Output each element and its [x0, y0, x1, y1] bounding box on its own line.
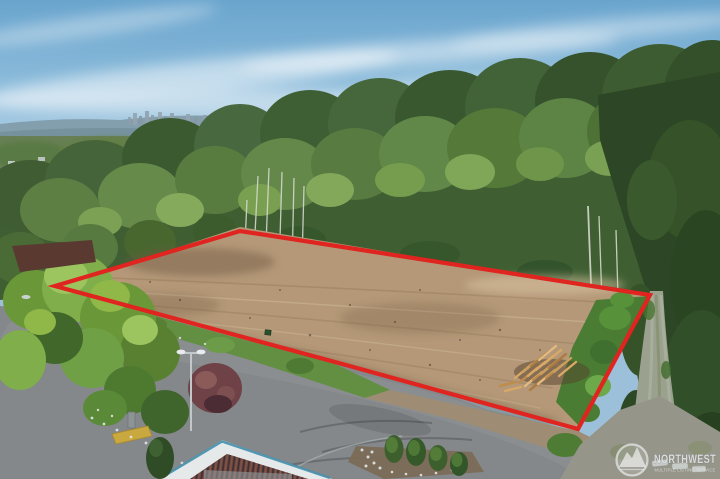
- nwmls-logo-icon: [617, 445, 648, 476]
- watermark-tagline-text: MULTIPLE LISTING SERVICE: [655, 468, 716, 473]
- parking-lamp: [22, 295, 31, 299]
- utility-box: [265, 330, 271, 336]
- sign-box: [128, 412, 135, 428]
- listing-photo: NORTHWEST MULTIPLE LISTING SERVICE: [0, 0, 720, 479]
- watermark-brand-text: NORTHWEST: [654, 454, 716, 466]
- burgundy-bush: [188, 363, 242, 413]
